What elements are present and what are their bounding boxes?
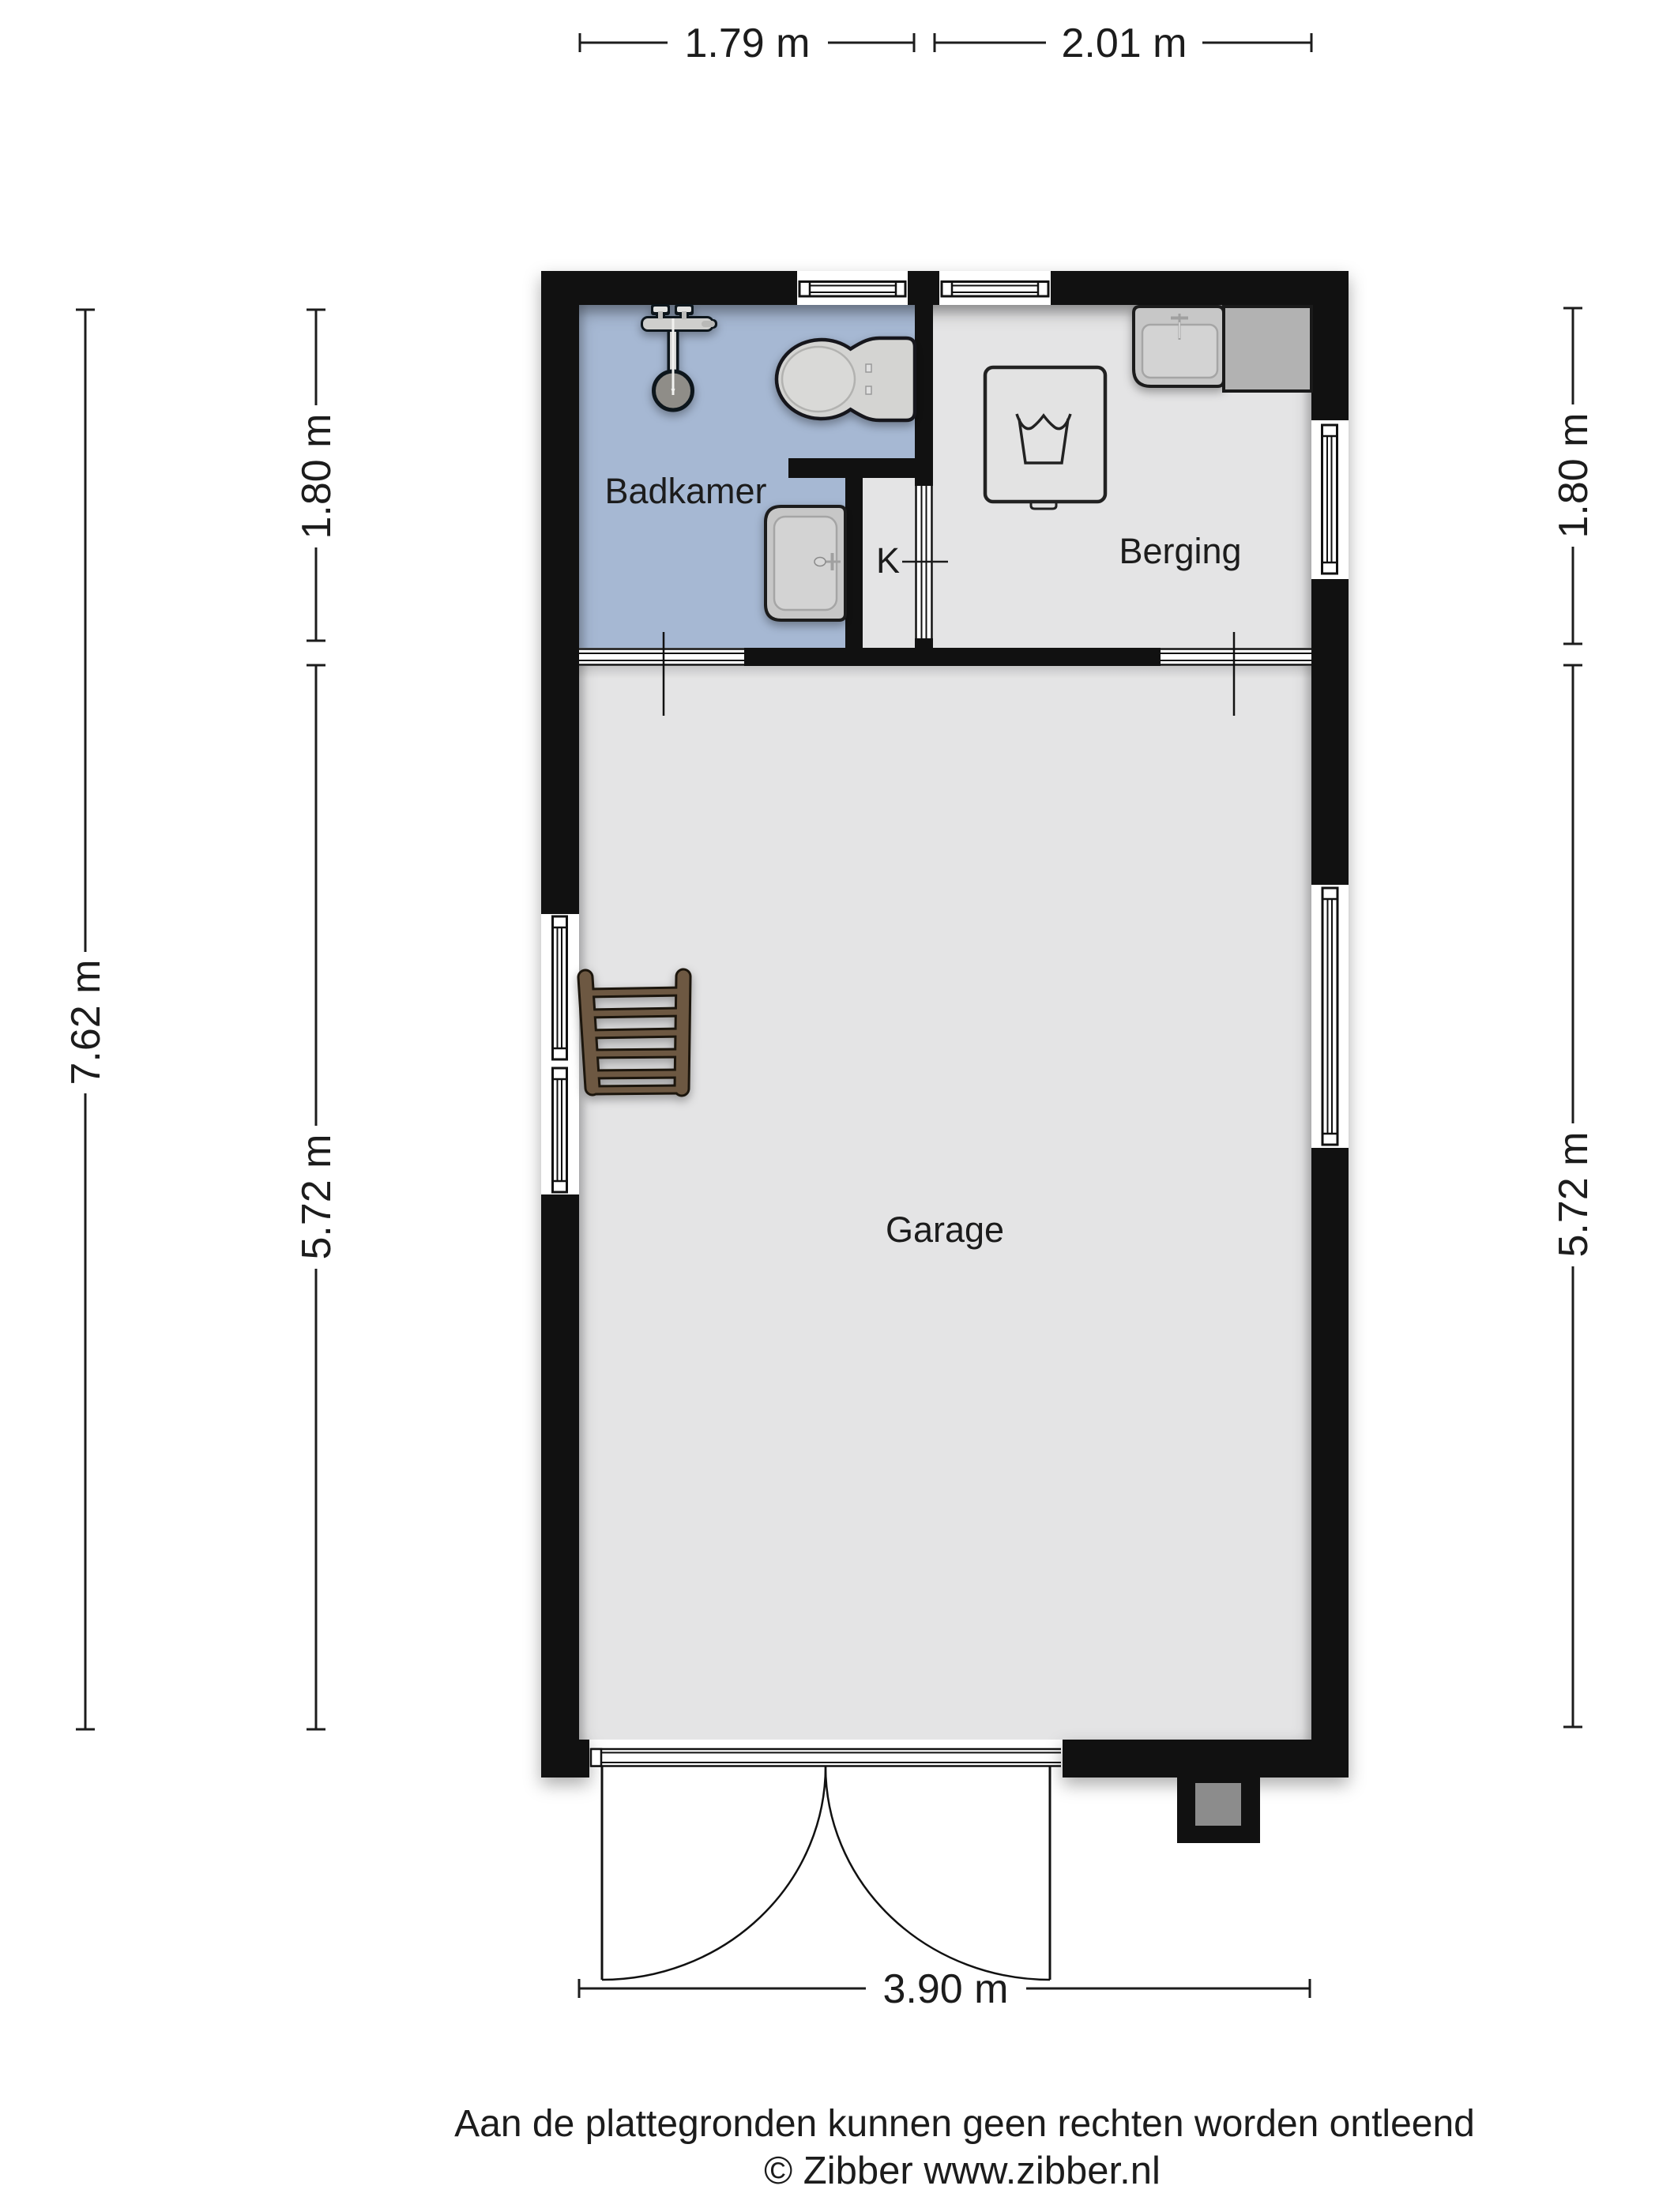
svg-text:Badkamer: Badkamer (604, 471, 766, 511)
svg-text:7.62 m: 7.62 m (63, 960, 109, 1085)
svg-text:3.90 m: 3.90 m (883, 1966, 1009, 2012)
svg-text:Garage: Garage (886, 1209, 1004, 1250)
svg-text:K: K (876, 540, 900, 581)
svg-text:Berging: Berging (1119, 531, 1241, 571)
svg-text:5.72 m: 5.72 m (294, 1134, 340, 1260)
svg-text:1.79 m: 1.79 m (685, 21, 811, 66)
svg-text:1.80 m: 1.80 m (1551, 413, 1597, 539)
svg-text:5.72 m: 5.72 m (1551, 1132, 1597, 1258)
svg-text:1.80 m: 1.80 m (294, 414, 340, 540)
svg-text:© Zibber www.zibber.nl: © Zibber www.zibber.nl (764, 2150, 1161, 2192)
svg-text:2.01 m: 2.01 m (1062, 21, 1187, 66)
svg-text:Aan de plattegronden kunnen ge: Aan de plattegronden kunnen geen rechten… (454, 2103, 1475, 2145)
